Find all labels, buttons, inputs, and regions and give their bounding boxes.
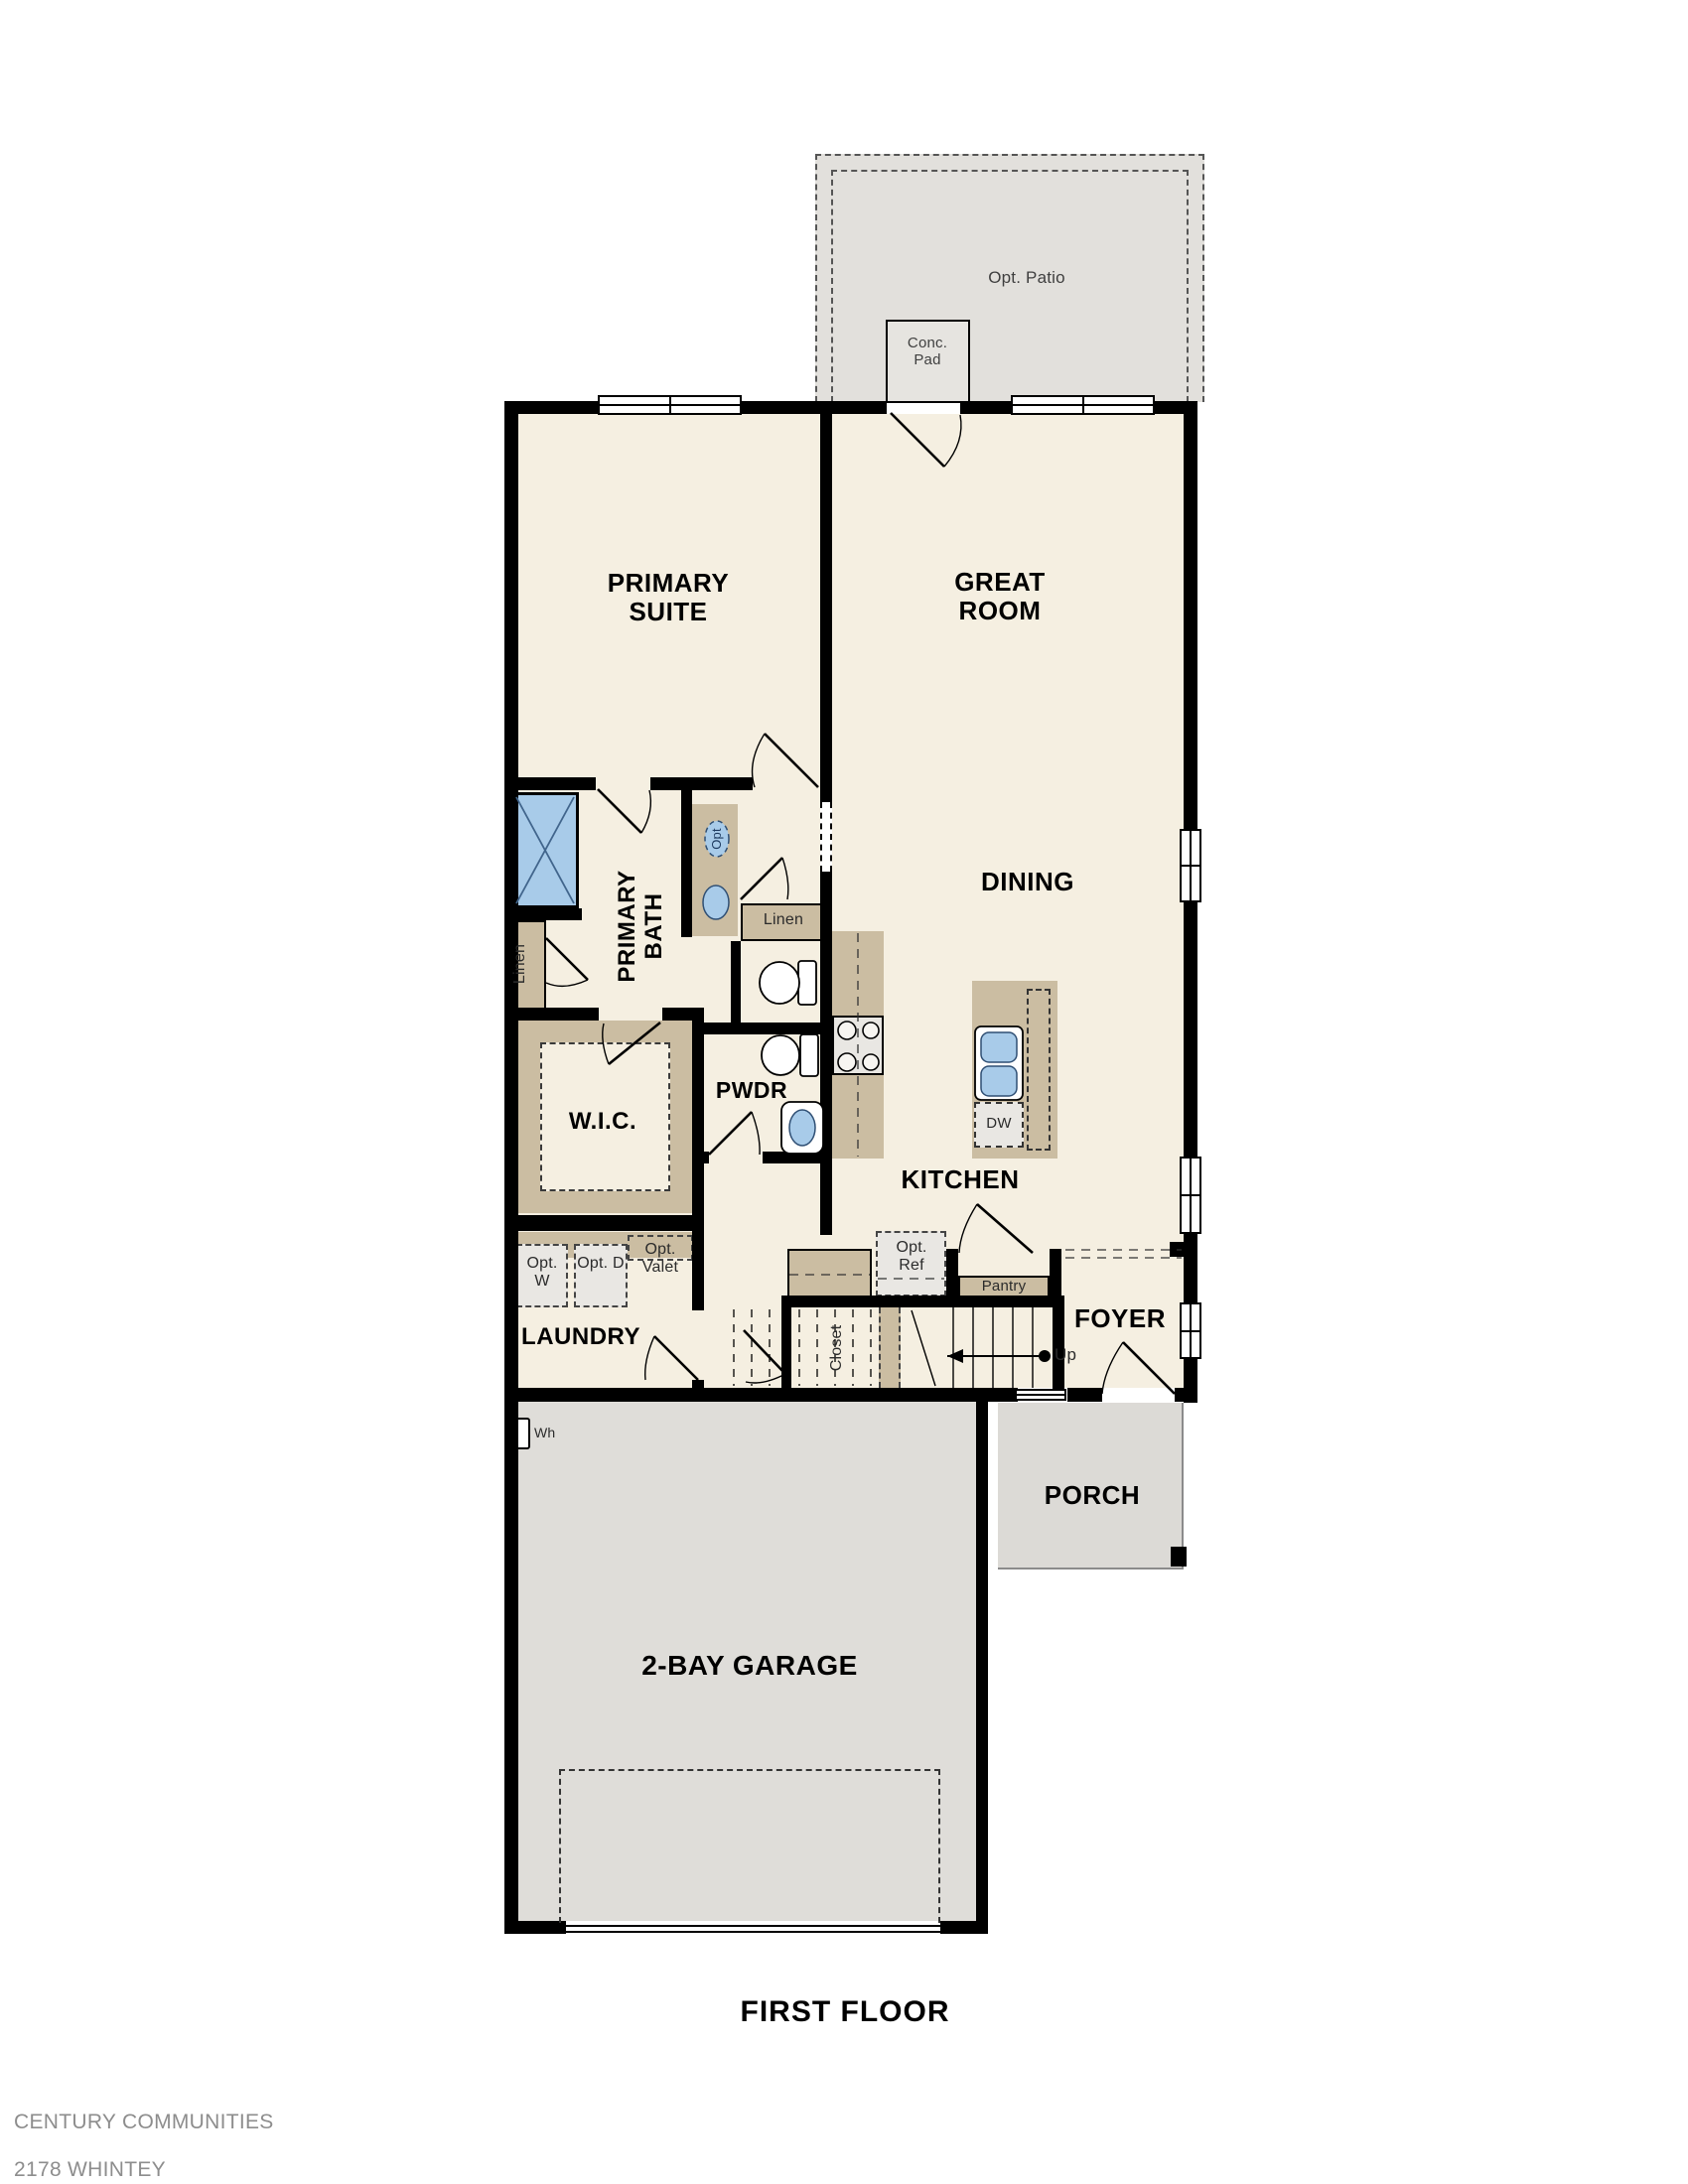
stair-treads	[912, 1307, 1033, 1388]
label-wic: W.I.C.	[543, 1109, 662, 1136]
label-up: Up	[1055, 1346, 1104, 1365]
front-door	[1123, 1342, 1175, 1394]
label-opt-sink: Opt	[710, 824, 724, 854]
detail-dashes	[789, 933, 1182, 1279]
label-opt-valet: Opt. Valet	[632, 1241, 689, 1276]
label-conc-pad: Conc. Pad	[896, 336, 959, 368]
label-closet: Closet	[828, 1308, 846, 1388]
label-pwdr: PWDR	[702, 1078, 801, 1104]
footer-model: 2178 WHINTEY	[14, 2158, 510, 2182]
plan-linework	[0, 0, 1688, 2184]
shower-x	[516, 797, 574, 903]
hall-door	[744, 1330, 785, 1374]
label-pantry: Pantry	[958, 1279, 1050, 1296]
label-linen-left: Linen	[511, 929, 529, 999]
label-dining: DINING	[948, 868, 1107, 896]
bath-door	[598, 789, 641, 833]
closet-rod-dashes	[734, 1309, 871, 1386]
label-wh: Wh	[534, 1426, 574, 1440]
label-garage: 2-BAY GARAGE	[601, 1650, 899, 1681]
label-opt-d: Opt. D	[576, 1255, 626, 1273]
vanity-sink	[703, 886, 729, 919]
label-opt-ref: Opt. Ref	[884, 1239, 939, 1274]
footer-block: CENTURY COMMUNITIES 2178 WHINTEY REV 01.…	[14, 2087, 510, 2184]
footer-company: CENTURY COMMUNITIES	[14, 2111, 510, 2134]
laundry-door	[654, 1336, 698, 1380]
label-porch: PORCH	[1023, 1481, 1162, 1510]
pwdr-toilet	[762, 1034, 818, 1076]
label-foyer: FOYER	[1051, 1304, 1190, 1333]
patio-door	[891, 413, 944, 467]
up-arrow	[947, 1349, 1051, 1363]
island-sink	[975, 1026, 1023, 1100]
label-linen-right: Linen	[741, 911, 826, 929]
label-kitchen: KITCHEN	[881, 1165, 1040, 1194]
linen-left-door	[546, 938, 588, 980]
bath-toilet	[760, 961, 816, 1005]
toilet-room-door	[741, 858, 782, 899]
wic-door	[609, 1023, 660, 1064]
floor-plan-page: Opt. Patio	[0, 0, 1688, 2184]
label-opt-w: Opt. W	[518, 1255, 566, 1290]
label-primary-suite: PRIMARY SUITE	[589, 569, 748, 626]
label-primary-bath: PRIMARY BATH	[615, 847, 670, 1006]
pwdr-sink	[781, 1102, 823, 1154]
label-laundry: LAUNDRY	[501, 1324, 660, 1351]
pwdr-door	[709, 1112, 752, 1155]
suite-door	[765, 734, 818, 787]
label-great-room: GREAT ROOM	[920, 568, 1079, 625]
label-first-floor: FIRST FLOOR	[666, 1995, 1024, 2029]
label-dw: DW	[974, 1116, 1024, 1133]
pantry-door	[977, 1204, 1033, 1253]
